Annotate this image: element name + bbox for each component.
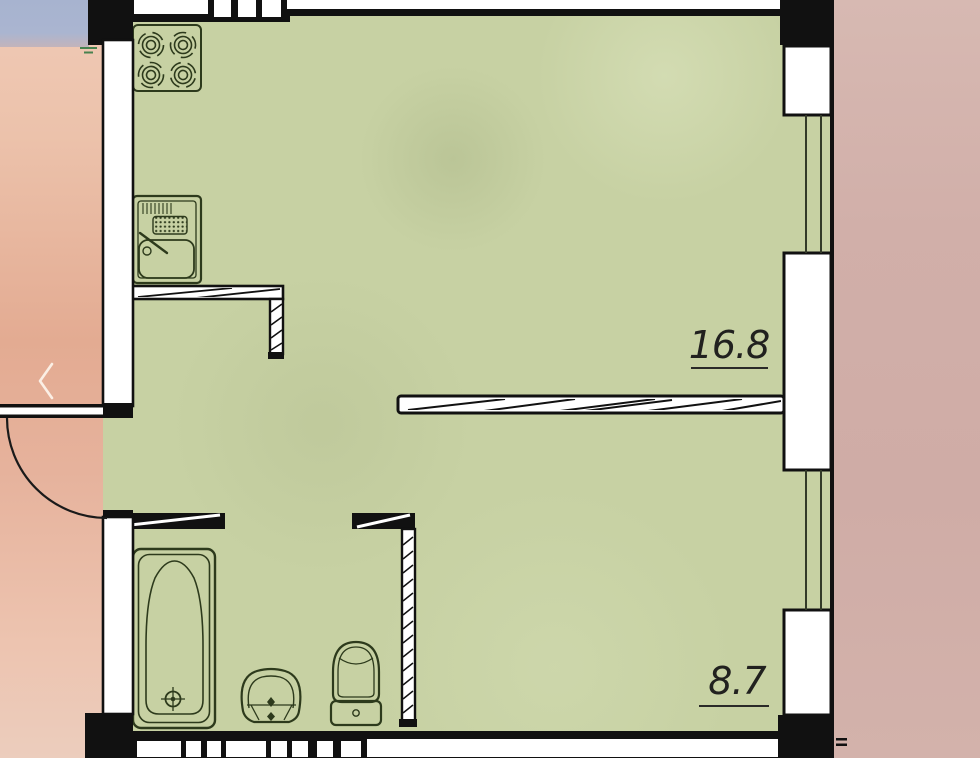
- previous-photo-button[interactable]: [32, 358, 62, 402]
- area-underline: [699, 705, 769, 707]
- floorplan-photo-viewer: 16.8 8.7: [0, 0, 980, 758]
- balcony-tie-mark: [836, 738, 847, 741]
- right-wall-piers: [784, 46, 831, 715]
- door-swing-arc: [7, 418, 107, 518]
- stove-icon: [133, 25, 201, 91]
- toilet-icon: [331, 642, 381, 725]
- room-area-label: 16.8: [688, 326, 770, 364]
- left-wall: [103, 40, 133, 714]
- bathroom-walls: [107, 513, 417, 727]
- right-wall-window-upper: [806, 115, 821, 253]
- washbasin-icon: [242, 669, 301, 722]
- area-underline: [691, 367, 768, 369]
- kitchen-sink-icon: [133, 196, 201, 283]
- right-wall-window-lower: [806, 470, 821, 610]
- entry-door: [0, 404, 133, 518]
- exterior-walls: [0, 0, 847, 758]
- kitchen-counter-wall: [130, 286, 284, 359]
- floorplan-drawing: [0, 0, 980, 758]
- chevron-left-icon: [32, 358, 62, 402]
- plant-mark: [80, 48, 97, 53]
- room-area-label: 8.7: [702, 662, 772, 700]
- room-divider-wall: [398, 396, 784, 413]
- bottom-window-band: [130, 731, 780, 758]
- bathtub-icon: [133, 549, 215, 728]
- kitchen-window-band: [130, 0, 290, 22]
